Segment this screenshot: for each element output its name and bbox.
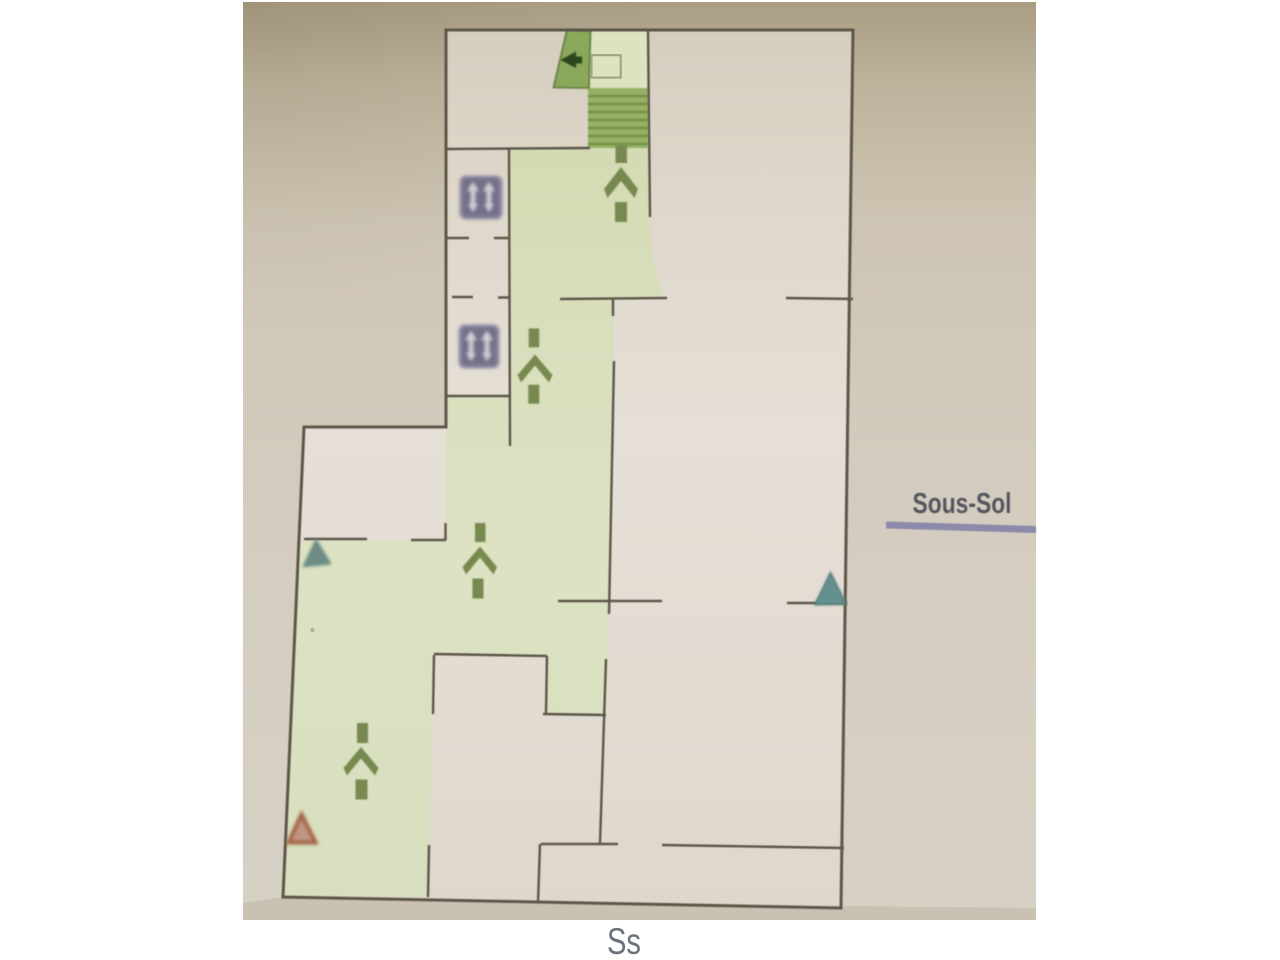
svg-text:Sous-Sol: Sous-Sol [913,488,1012,520]
svg-text:Ss: Ss [607,921,641,960]
